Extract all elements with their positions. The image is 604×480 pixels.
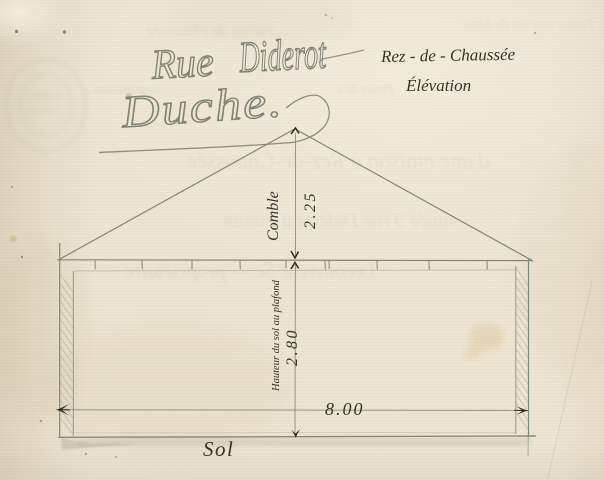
svg-text:Hauteur du sol au plafond: Hauteur du sol au plafond — [271, 279, 282, 392]
svg-text:située 9 rue Diderot à Pantin: située 9 rue Diderot à Pantin — [223, 210, 456, 232]
svg-text:d'une maison à Rez-de-Chaussée: d'une maison à Rez-de-Chaussée — [186, 148, 489, 173]
svg-text:2.80: 2.80 — [284, 328, 301, 366]
svg-text:Élévation: Élévation — [405, 76, 471, 95]
svg-text:8.00: 8.00 — [325, 399, 365, 419]
svg-text:Comble: Comble — [265, 191, 282, 241]
svg-text:Rue: Rue — [149, 37, 214, 87]
svg-text:Sol: Sol — [203, 437, 234, 461]
svg-text:Diderot: Diderot — [237, 28, 327, 81]
svg-text:Projet de c: Projet de c — [337, 81, 395, 96]
svg-text:2.25: 2.25 — [302, 191, 319, 229]
svg-text:l'autorisation de bâtir: l'autorisation de bâtir — [462, 17, 594, 33]
svg-text:Rez - de - Chaussée: Rez - de - Chaussée — [380, 45, 516, 66]
svg-text:MAIRIE: MAIRIE — [30, 92, 62, 102]
svg-text:PANTIN: PANTIN — [28, 107, 57, 116]
svg-text:Duche.: Duche. — [119, 77, 285, 137]
